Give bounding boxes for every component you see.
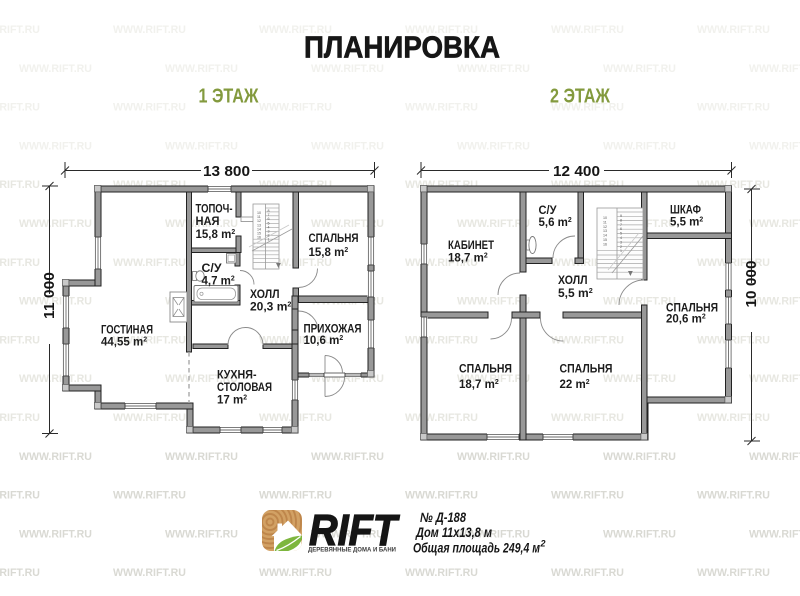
svg-text:НАЯ: НАЯ: [196, 216, 220, 228]
svg-text:13: 13: [603, 229, 607, 233]
svg-text:WWW.RIFT.RU: WWW.RIFT.RU: [749, 140, 800, 152]
svg-text:WWW.RIFT.RU: WWW.RIFT.RU: [603, 528, 676, 540]
svg-text:ПРИХОЖАЯ: ПРИХОЖАЯ: [304, 324, 362, 336]
svg-text:WWW.RIFT.RU: WWW.RIFT.RU: [457, 296, 530, 308]
svg-text:5,6 m2: 5,6 m2: [539, 217, 572, 229]
svg-text:WWW.RIFT.RU: WWW.RIFT.RU: [0, 257, 40, 269]
svg-text:WWW.RIFT.RU: WWW.RIFT.RU: [749, 451, 800, 463]
svg-text:2: 2: [540, 539, 546, 549]
svg-text:WWW.RIFT.RU: WWW.RIFT.RU: [259, 102, 332, 114]
svg-text:5: 5: [620, 232, 622, 236]
svg-text:10,6 m2: 10,6 m2: [304, 335, 344, 347]
svg-text:ХОЛЛ: ХОЛЛ: [558, 273, 588, 287]
svg-text:№ Д-188: № Д-188: [420, 510, 466, 525]
svg-text:WWW.RIFT.RU: WWW.RIFT.RU: [551, 24, 624, 36]
svg-text:12 400: 12 400: [553, 164, 600, 180]
svg-text:15: 15: [257, 232, 261, 236]
svg-text:3: 3: [268, 229, 270, 233]
svg-text:ТОПОЧ-: ТОПОЧ-: [196, 204, 233, 216]
svg-text:5: 5: [268, 221, 270, 225]
svg-text:2: 2: [620, 245, 622, 249]
svg-text:10: 10: [603, 216, 607, 220]
svg-text:WWW.RIFT.RU: WWW.RIFT.RU: [165, 451, 238, 463]
svg-text:WWW.RIFT.RU: WWW.RIFT.RU: [311, 140, 384, 152]
svg-text:15,8 m2: 15,8 m2: [309, 247, 349, 259]
svg-text:WWW.RIFT.RU: WWW.RIFT.RU: [697, 24, 770, 36]
svg-text:11 000: 11 000: [42, 272, 58, 319]
svg-text:WWW.RIFT.RU: WWW.RIFT.RU: [457, 140, 530, 152]
svg-text:WWW.RIFT.RU: WWW.RIFT.RU: [113, 24, 186, 36]
svg-text:5,5 m2: 5,5 m2: [670, 216, 703, 228]
svg-text:11: 11: [257, 215, 261, 219]
svg-text:WWW.RIFT.RU: WWW.RIFT.RU: [697, 567, 770, 579]
svg-text:WWW.RIFT.RU: WWW.RIFT.RU: [457, 63, 530, 75]
svg-text:WWW.RIFT.RU: WWW.RIFT.RU: [551, 334, 624, 346]
svg-text:18,7 m2: 18,7 m2: [459, 379, 499, 391]
svg-text:WWW.RIFT.RU: WWW.RIFT.RU: [0, 412, 40, 424]
svg-text:11: 11: [603, 220, 607, 224]
svg-text:Дом 11х13,8 м: Дом 11х13,8 м: [415, 525, 492, 540]
svg-text:Общая площадь 249,4 м: Общая площадь 249,4 м: [413, 541, 540, 556]
svg-text:WWW.RIFT.RU: WWW.RIFT.RU: [165, 63, 238, 75]
svg-text:1: 1: [620, 249, 622, 253]
svg-text:16: 16: [603, 242, 607, 246]
svg-text:4: 4: [620, 236, 622, 240]
svg-text:ГОСТИНАЯ: ГОСТИНАЯ: [101, 325, 153, 337]
svg-text:WWW.RIFT.RU: WWW.RIFT.RU: [603, 451, 676, 463]
svg-text:3: 3: [620, 240, 622, 244]
svg-text:WWW.RIFT.RU: WWW.RIFT.RU: [259, 567, 332, 579]
svg-text:С/У: С/У: [202, 263, 223, 275]
svg-text:WWW.RIFT.RU: WWW.RIFT.RU: [405, 490, 478, 502]
svg-text:2 ЭТАЖ: 2 ЭТАЖ: [550, 86, 611, 108]
svg-text:14: 14: [257, 227, 261, 231]
svg-text:WWW.RIFT.RU: WWW.RIFT.RU: [405, 567, 478, 579]
svg-text:44,55 m2: 44,55 m2: [101, 336, 147, 348]
svg-text:WWW.RIFT.RU: WWW.RIFT.RU: [19, 63, 92, 75]
svg-text:WWW.RIFT.RU: WWW.RIFT.RU: [697, 102, 770, 114]
svg-text:ДЕРЕВЯННЫЕ ДОМА И БАНИ: ДЕРЕВЯННЫЕ ДОМА И БАНИ: [308, 547, 396, 554]
svg-text:1 ЭТАЖ: 1 ЭТАЖ: [199, 86, 260, 108]
svg-text:WWW.RIFT.RU: WWW.RIFT.RU: [405, 412, 478, 424]
svg-text:WWW.RIFT.RU: WWW.RIFT.RU: [311, 63, 384, 75]
svg-text:WWW.RIFT.RU: WWW.RIFT.RU: [0, 490, 40, 502]
svg-text:WWW.RIFT.RU: WWW.RIFT.RU: [551, 490, 624, 502]
svg-text:15: 15: [603, 238, 607, 242]
svg-text:6: 6: [268, 217, 270, 221]
svg-text:ПЛАНИРОВКА: ПЛАНИРОВКА: [304, 30, 500, 65]
svg-text:4: 4: [268, 225, 270, 229]
svg-text:WWW.RIFT.RU: WWW.RIFT.RU: [603, 140, 676, 152]
svg-text:WWW.RIFT.RU: WWW.RIFT.RU: [113, 412, 186, 424]
svg-text:WWW.RIFT.RU: WWW.RIFT.RU: [113, 490, 186, 502]
svg-text:22 m2: 22 m2: [560, 379, 590, 391]
svg-text:6: 6: [620, 227, 622, 231]
svg-text:СПАЛЬНЯ: СПАЛЬНЯ: [309, 233, 359, 245]
svg-text:WWW.RIFT.RU: WWW.RIFT.RU: [0, 179, 40, 191]
svg-text:WWW.RIFT.RU: WWW.RIFT.RU: [405, 334, 478, 346]
svg-text:WWW.RIFT.RU: WWW.RIFT.RU: [19, 140, 92, 152]
svg-text:КУХНЯ-: КУХНЯ-: [217, 370, 257, 382]
svg-text:5,5 m2: 5,5 m2: [558, 286, 593, 300]
svg-text:13: 13: [257, 223, 261, 227]
svg-text:17 m2: 17 m2: [217, 394, 247, 406]
svg-text:WWW.RIFT.RU: WWW.RIFT.RU: [749, 373, 800, 385]
svg-text:КАБИНЕТ: КАБИНЕТ: [448, 240, 494, 252]
svg-text:13 800: 13 800: [203, 164, 250, 180]
svg-text:1: 1: [268, 238, 270, 242]
svg-text:WWW.RIFT.RU: WWW.RIFT.RU: [0, 102, 40, 114]
svg-text:С/У: С/У: [539, 205, 558, 217]
svg-text:16: 16: [257, 236, 261, 240]
svg-text:7: 7: [268, 213, 270, 217]
svg-text:14: 14: [603, 234, 607, 238]
svg-text:WWW.RIFT.RU: WWW.RIFT.RU: [19, 218, 92, 230]
svg-text:9: 9: [620, 214, 622, 218]
svg-text:WWW.RIFT.RU: WWW.RIFT.RU: [0, 334, 40, 346]
svg-text:WWW.RIFT.RU: WWW.RIFT.RU: [311, 451, 384, 463]
svg-text:WWW.RIFT.RU: WWW.RIFT.RU: [19, 373, 92, 385]
svg-text:WWW.RIFT.RU: WWW.RIFT.RU: [749, 528, 800, 540]
svg-text:WWW.RIFT.RU: WWW.RIFT.RU: [749, 218, 800, 230]
svg-text:WWW.RIFT.RU: WWW.RIFT.RU: [0, 24, 40, 36]
svg-text:15,8 m2: 15,8 m2: [196, 229, 236, 241]
svg-text:12: 12: [257, 219, 261, 223]
svg-text:WWW.RIFT.RU: WWW.RIFT.RU: [113, 257, 186, 269]
svg-text:8: 8: [268, 209, 270, 213]
svg-text:WWW.RIFT.RU: WWW.RIFT.RU: [165, 528, 238, 540]
svg-text:СПАЛЬНЯ: СПАЛЬНЯ: [560, 364, 613, 376]
svg-text:7: 7: [620, 223, 622, 227]
svg-text:WWW.RIFT.RU: WWW.RIFT.RU: [165, 140, 238, 152]
svg-text:WWW.RIFT.RU: WWW.RIFT.RU: [697, 412, 770, 424]
svg-text:WWW.RIFT.RU: WWW.RIFT.RU: [697, 334, 770, 346]
svg-text:18,7 m2: 18,7 m2: [448, 252, 488, 264]
svg-text:WWW.RIFT.RU: WWW.RIFT.RU: [19, 528, 92, 540]
svg-text:WWW.RIFT.RU: WWW.RIFT.RU: [19, 451, 92, 463]
svg-text:2: 2: [268, 234, 270, 238]
svg-text:WWW.RIFT.RU: WWW.RIFT.RU: [457, 451, 530, 463]
svg-text:WWW.RIFT.RU: WWW.RIFT.RU: [697, 490, 770, 502]
svg-text:10 000: 10 000: [744, 261, 760, 308]
svg-text:4,7 m2: 4,7 m2: [202, 275, 235, 287]
svg-text:WWW.RIFT.RU: WWW.RIFT.RU: [113, 102, 186, 114]
svg-text:10: 10: [257, 211, 261, 215]
svg-text:WWW.RIFT.RU: WWW.RIFT.RU: [603, 63, 676, 75]
svg-text:WWW.RIFT.RU: WWW.RIFT.RU: [457, 218, 530, 230]
svg-text:WWW.RIFT.RU: WWW.RIFT.RU: [0, 567, 40, 579]
svg-text:12: 12: [603, 225, 607, 229]
svg-text:WWW.RIFT.RU: WWW.RIFT.RU: [551, 567, 624, 579]
svg-text:WWW.RIFT.RU: WWW.RIFT.RU: [749, 63, 800, 75]
svg-text:WWW.RIFT.RU: WWW.RIFT.RU: [113, 567, 186, 579]
svg-text:СПАЛЬНЯ: СПАЛЬНЯ: [459, 364, 512, 376]
svg-text:8: 8: [620, 218, 622, 222]
svg-text:20,6 m2: 20,6 m2: [666, 313, 706, 325]
svg-text:ШКАФ: ШКАФ: [670, 205, 701, 217]
svg-text:СТОЛОВАЯ: СТОЛОВАЯ: [217, 382, 272, 394]
svg-text:20,3 m2: 20,3 m2: [250, 299, 291, 313]
svg-text:WWW.RIFT.RU: WWW.RIFT.RU: [551, 412, 624, 424]
svg-text:WWW.RIFT.RU: WWW.RIFT.RU: [259, 490, 332, 502]
svg-text:WWW.RIFT.RU: WWW.RIFT.RU: [603, 373, 676, 385]
svg-text:WWW.RIFT.RU: WWW.RIFT.RU: [405, 102, 478, 114]
